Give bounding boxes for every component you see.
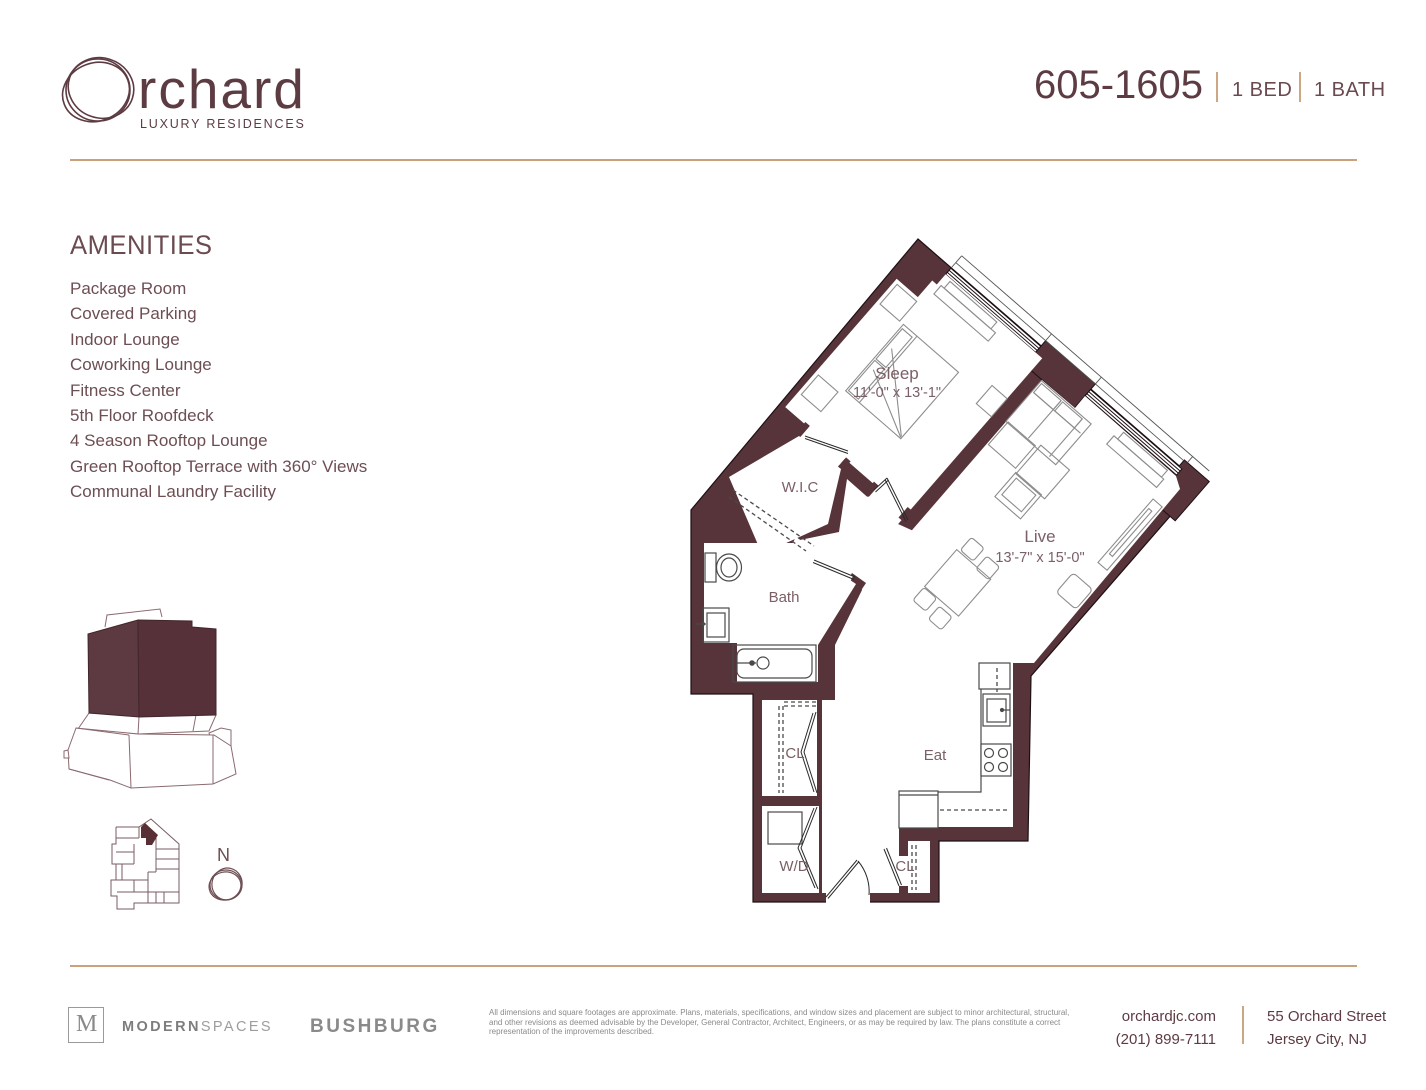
svg-text:Sleep: Sleep <box>875 364 918 383</box>
svg-text:CL: CL <box>895 858 914 875</box>
svg-text:13'-7" x 15'-0": 13'-7" x 15'-0" <box>995 550 1084 566</box>
svg-text:W.I.C: W.I.C <box>782 479 819 496</box>
svg-text:Eat: Eat <box>924 747 947 764</box>
svg-text:W/D: W/D <box>779 858 808 875</box>
svg-text:Live: Live <box>1024 527 1055 546</box>
svg-text:CL: CL <box>785 745 804 762</box>
svg-text:Bath: Bath <box>769 589 800 606</box>
svg-text:11'-0" x 13'-1": 11'-0" x 13'-1" <box>853 385 941 401</box>
